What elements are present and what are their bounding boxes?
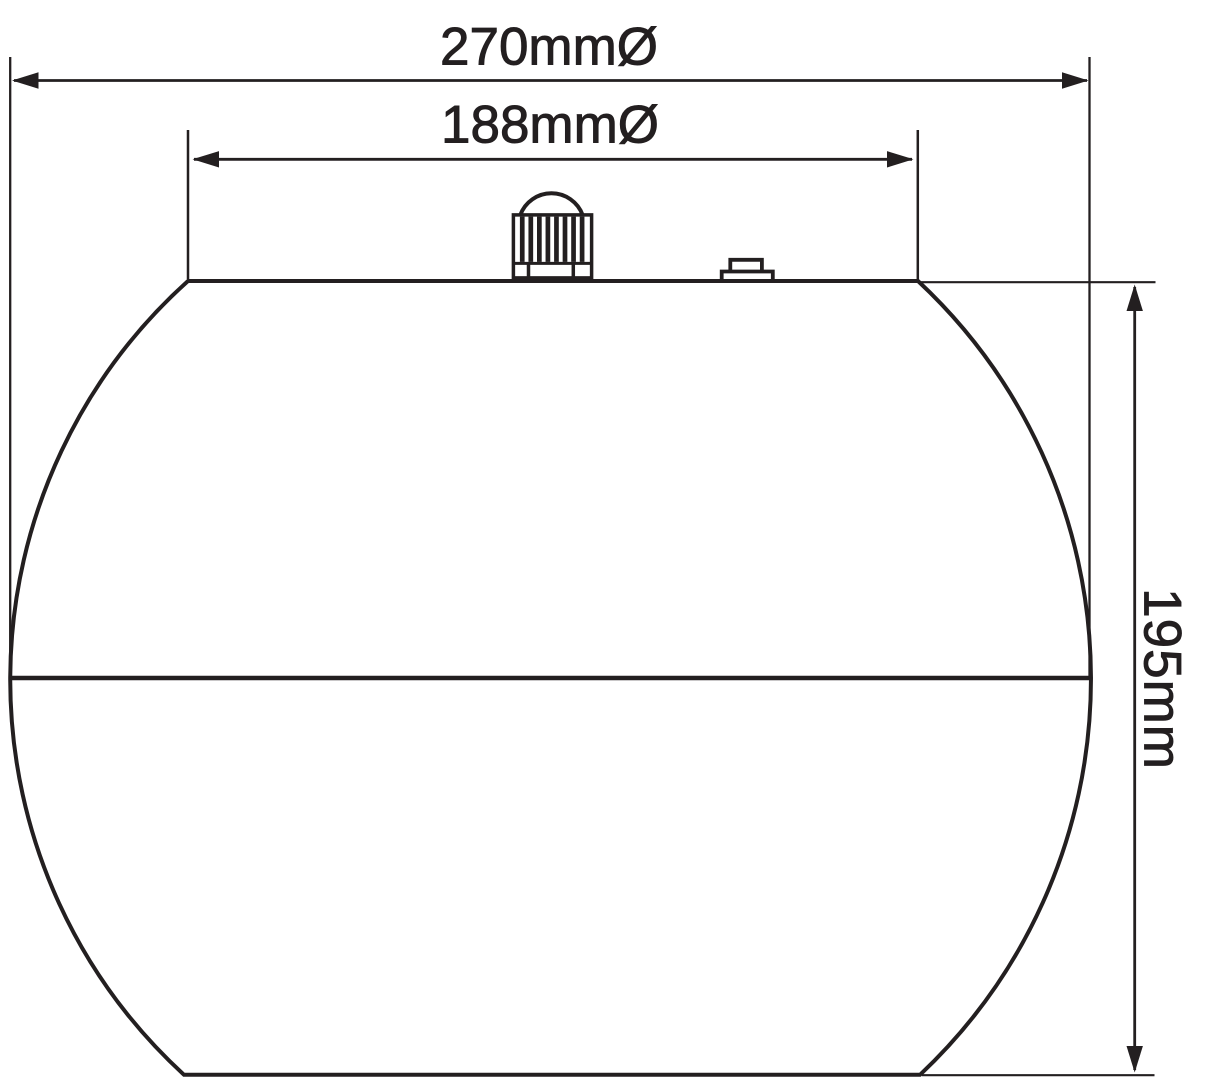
svg-text:195mm: 195mm (1133, 588, 1192, 770)
svg-text:270mmØ: 270mmØ (440, 17, 658, 76)
svg-text:188mmØ: 188mmØ (441, 95, 659, 154)
